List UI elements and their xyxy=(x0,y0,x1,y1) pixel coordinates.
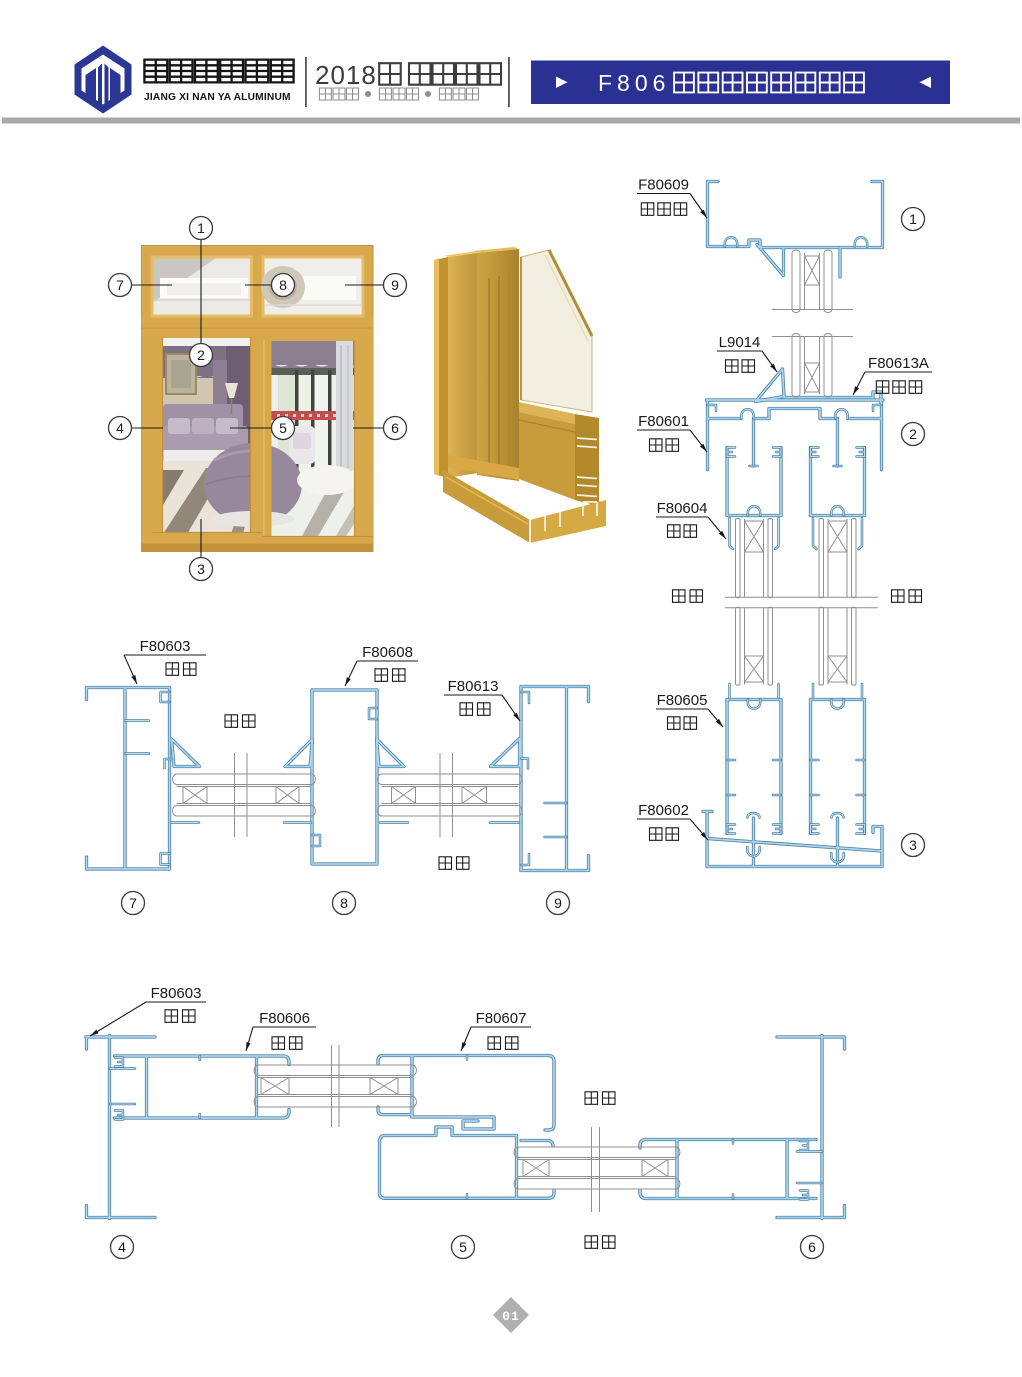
svg-text:6: 6 xyxy=(391,420,399,436)
svg-text:5: 5 xyxy=(279,420,287,436)
svg-text:3: 3 xyxy=(909,837,917,853)
svg-text:9: 9 xyxy=(391,277,399,293)
svg-text:F80602: F80602 xyxy=(638,802,689,819)
svg-text:F80613A: F80613A xyxy=(868,355,929,372)
svg-text:F80605: F80605 xyxy=(657,692,708,709)
svg-text:8: 8 xyxy=(279,277,287,293)
svg-text:F80604: F80604 xyxy=(657,500,708,517)
svg-text:F80608: F80608 xyxy=(362,644,413,661)
svg-text:F80609: F80609 xyxy=(638,177,689,194)
svg-text:L9014: L9014 xyxy=(719,334,761,351)
svg-text:4: 4 xyxy=(116,420,124,436)
svg-text:8: 8 xyxy=(340,895,348,911)
svg-text:F80607: F80607 xyxy=(476,1010,527,1027)
svg-text:JIANG XI NAN YA ALUMINUM: JIANG XI NAN YA ALUMINUM xyxy=(144,92,291,103)
svg-text:3: 3 xyxy=(197,561,205,577)
svg-text:9: 9 xyxy=(554,895,562,911)
svg-text:1: 1 xyxy=(197,220,205,236)
svg-text:2018: 2018 xyxy=(315,60,377,90)
svg-text:F80603: F80603 xyxy=(140,638,191,655)
svg-text:2: 2 xyxy=(909,426,917,442)
svg-text:7: 7 xyxy=(116,277,124,293)
svg-text:5: 5 xyxy=(459,1239,467,1255)
svg-text:4: 4 xyxy=(118,1239,126,1255)
svg-text:F80603: F80603 xyxy=(151,985,202,1002)
svg-text:F806: F806 xyxy=(598,70,670,96)
svg-text:01: 01 xyxy=(502,1309,520,1324)
svg-text:6: 6 xyxy=(808,1239,816,1255)
svg-text:2: 2 xyxy=(197,347,205,363)
svg-text:F80613: F80613 xyxy=(448,678,499,695)
svg-text:F80606: F80606 xyxy=(259,1010,310,1027)
svg-text:7: 7 xyxy=(129,895,137,911)
svg-text:F80601: F80601 xyxy=(638,413,689,430)
svg-text:1: 1 xyxy=(909,211,917,227)
